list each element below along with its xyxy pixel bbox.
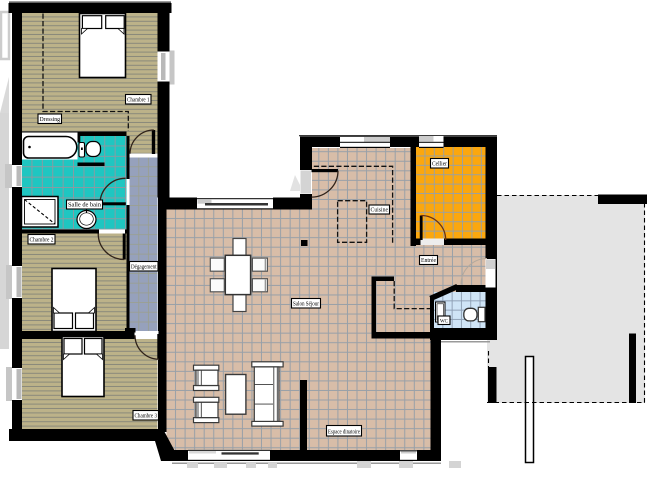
svg-text:Chambre 1: Chambre 1	[127, 98, 150, 104]
svg-text:WC: WC	[440, 318, 449, 324]
svg-text:Cuisine: Cuisine	[371, 208, 389, 214]
svg-text:Salle de bain: Salle de bain	[68, 203, 101, 209]
svg-text:Dégagement: Dégagement	[131, 265, 157, 271]
svg-text:Chambre 2: Chambre 2	[30, 238, 54, 244]
svg-text:Chambre 3: Chambre 3	[135, 414, 158, 420]
svg-text:Dressing: Dressing	[40, 117, 61, 123]
svg-text:Entrée: Entrée	[421, 258, 436, 264]
svg-text:Salon Séjour: Salon Séjour	[293, 302, 319, 308]
svg-text:Espace dinatoire: Espace dinatoire	[328, 430, 360, 436]
svg-text:Cellier: Cellier	[432, 162, 447, 168]
